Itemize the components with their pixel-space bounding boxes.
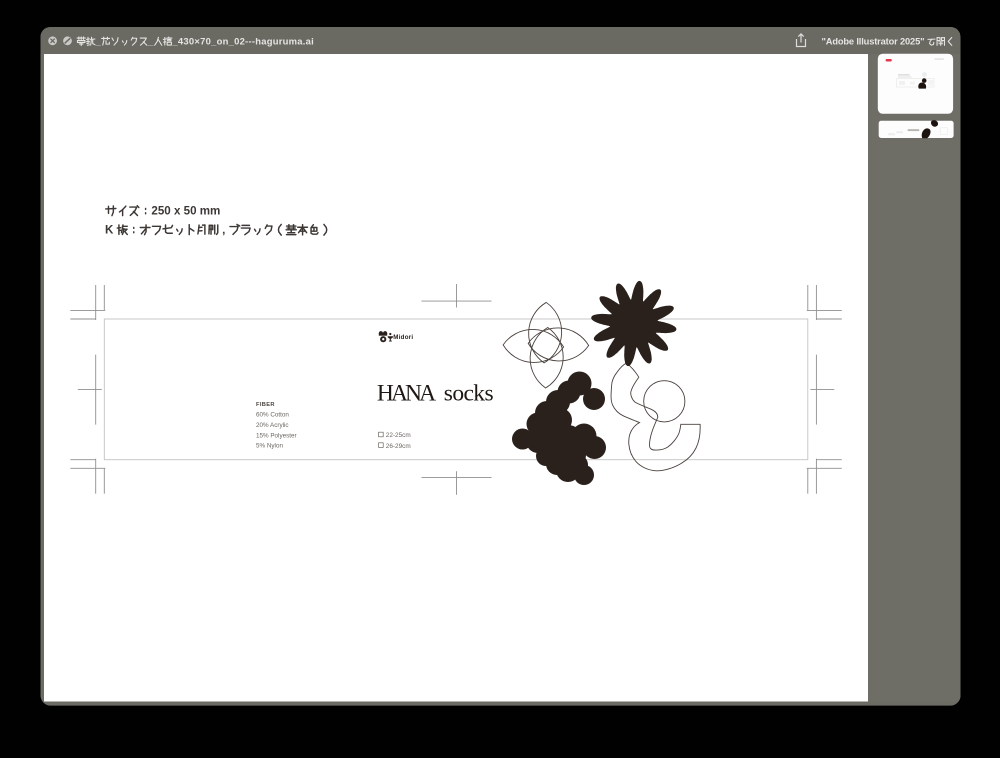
svg-text:22-25cm: 22-25cm [386, 432, 411, 439]
svg-text:socks: socks [444, 381, 494, 407]
svg-text:K: K [105, 224, 117, 237]
svg-text:5% Nylon: 5% Nylon [256, 443, 283, 450]
svg-text:,: , [219, 224, 229, 237]
svg-text:_430×70_on_02---haguruma.ai: _430×70_on_02---haguruma.ai [171, 35, 314, 46]
svg-text:"Adobe Illustrator 2025": "Adobe Illustrator 2025" [822, 36, 927, 46]
svg-text:60% Cotton: 60% Cotton [256, 412, 289, 419]
svg-text:20% Acrylic: 20% Acrylic [256, 422, 289, 429]
svg-text:250 x 50 mm: 250 x 50 mm [151, 205, 220, 218]
svg-text:_: _ [147, 35, 154, 46]
svg-text:HANA: HANA [377, 381, 436, 407]
svg-text:FIBER: FIBER [256, 402, 275, 408]
svg-text:15% Polyester: 15% Polyester [256, 432, 297, 439]
svg-text:Midori: Midori [393, 334, 413, 341]
svg-text:26-29cm: 26-29cm [386, 443, 411, 450]
svg-text:_: _ [94, 35, 101, 46]
